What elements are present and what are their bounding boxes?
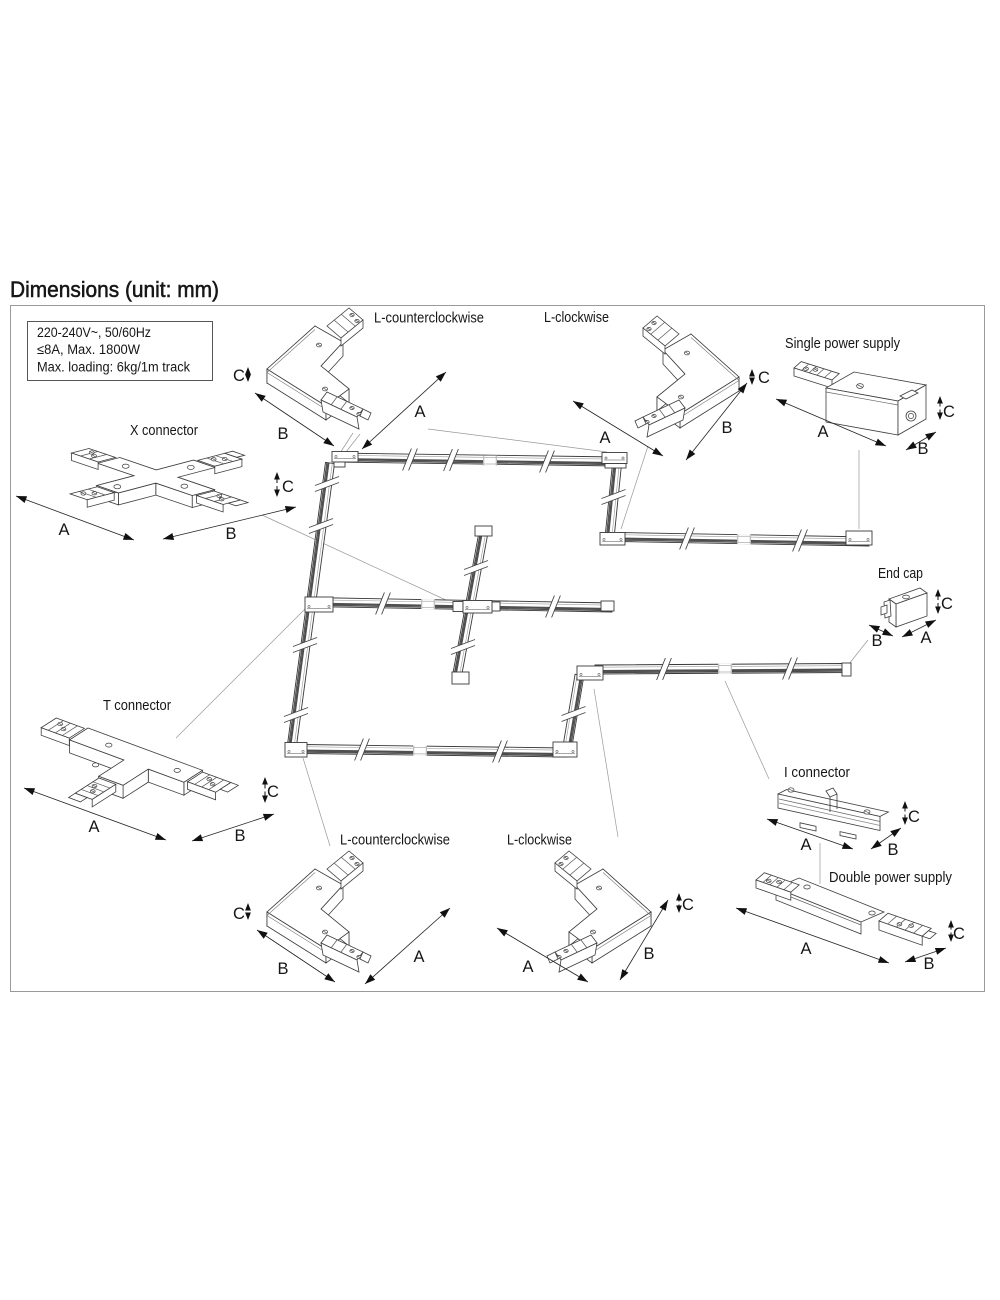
svg-text:C: C: [953, 925, 965, 943]
svg-text:C: C: [908, 808, 920, 826]
svg-text:C: C: [267, 783, 279, 801]
svg-text:C: C: [282, 478, 294, 496]
svg-text:L-clockwise: L-clockwise: [507, 833, 572, 849]
svg-text:L-counterclockwise: L-counterclockwise: [340, 833, 450, 849]
svg-text:C: C: [233, 367, 245, 385]
svg-text:A: A: [920, 629, 931, 647]
svg-text:A: A: [599, 429, 610, 447]
svg-text:B: B: [887, 841, 898, 859]
svg-text:T connector: T connector: [103, 698, 171, 714]
svg-text:B: B: [225, 525, 236, 543]
svg-text:220-240V~, 50/60Hz: 220-240V~, 50/60Hz: [37, 325, 151, 340]
svg-text:C: C: [233, 905, 245, 923]
svg-text:C: C: [682, 896, 694, 914]
svg-text:≤8A, Max. 1800W: ≤8A, Max. 1800W: [37, 342, 140, 357]
svg-text:L-counterclockwise: L-counterclockwise: [374, 311, 484, 327]
svg-text:A: A: [414, 403, 425, 421]
svg-text:Double power supply: Double power supply: [829, 870, 953, 886]
svg-text:C: C: [943, 403, 955, 421]
svg-text:L-clockwise: L-clockwise: [544, 310, 609, 326]
svg-text:B: B: [721, 419, 732, 437]
svg-text:B: B: [234, 827, 245, 845]
svg-text:A: A: [800, 940, 811, 958]
svg-text:A: A: [58, 521, 69, 539]
svg-text:I connector: I connector: [784, 765, 850, 781]
svg-text:B: B: [923, 955, 934, 973]
svg-text:B: B: [277, 960, 288, 978]
svg-text:Max. loading: 6kg/1m track: Max. loading: 6kg/1m track: [37, 360, 190, 375]
svg-text:C: C: [941, 595, 953, 613]
svg-text:B: B: [871, 632, 882, 650]
svg-text:End cap: End cap: [878, 566, 923, 582]
svg-text:B: B: [917, 440, 928, 458]
svg-text:X connector: X connector: [130, 423, 198, 439]
svg-text:Single power supply: Single power supply: [785, 336, 901, 352]
svg-text:B: B: [277, 425, 288, 443]
svg-text:B: B: [643, 945, 654, 963]
svg-text:A: A: [88, 818, 99, 836]
svg-text:C: C: [758, 369, 770, 387]
svg-text:A: A: [413, 948, 424, 966]
svg-text:A: A: [817, 423, 828, 441]
svg-text:A: A: [800, 836, 811, 854]
svg-text:A: A: [522, 958, 533, 976]
svg-text:Dimensions (unit: mm): Dimensions (unit: mm): [10, 277, 219, 302]
